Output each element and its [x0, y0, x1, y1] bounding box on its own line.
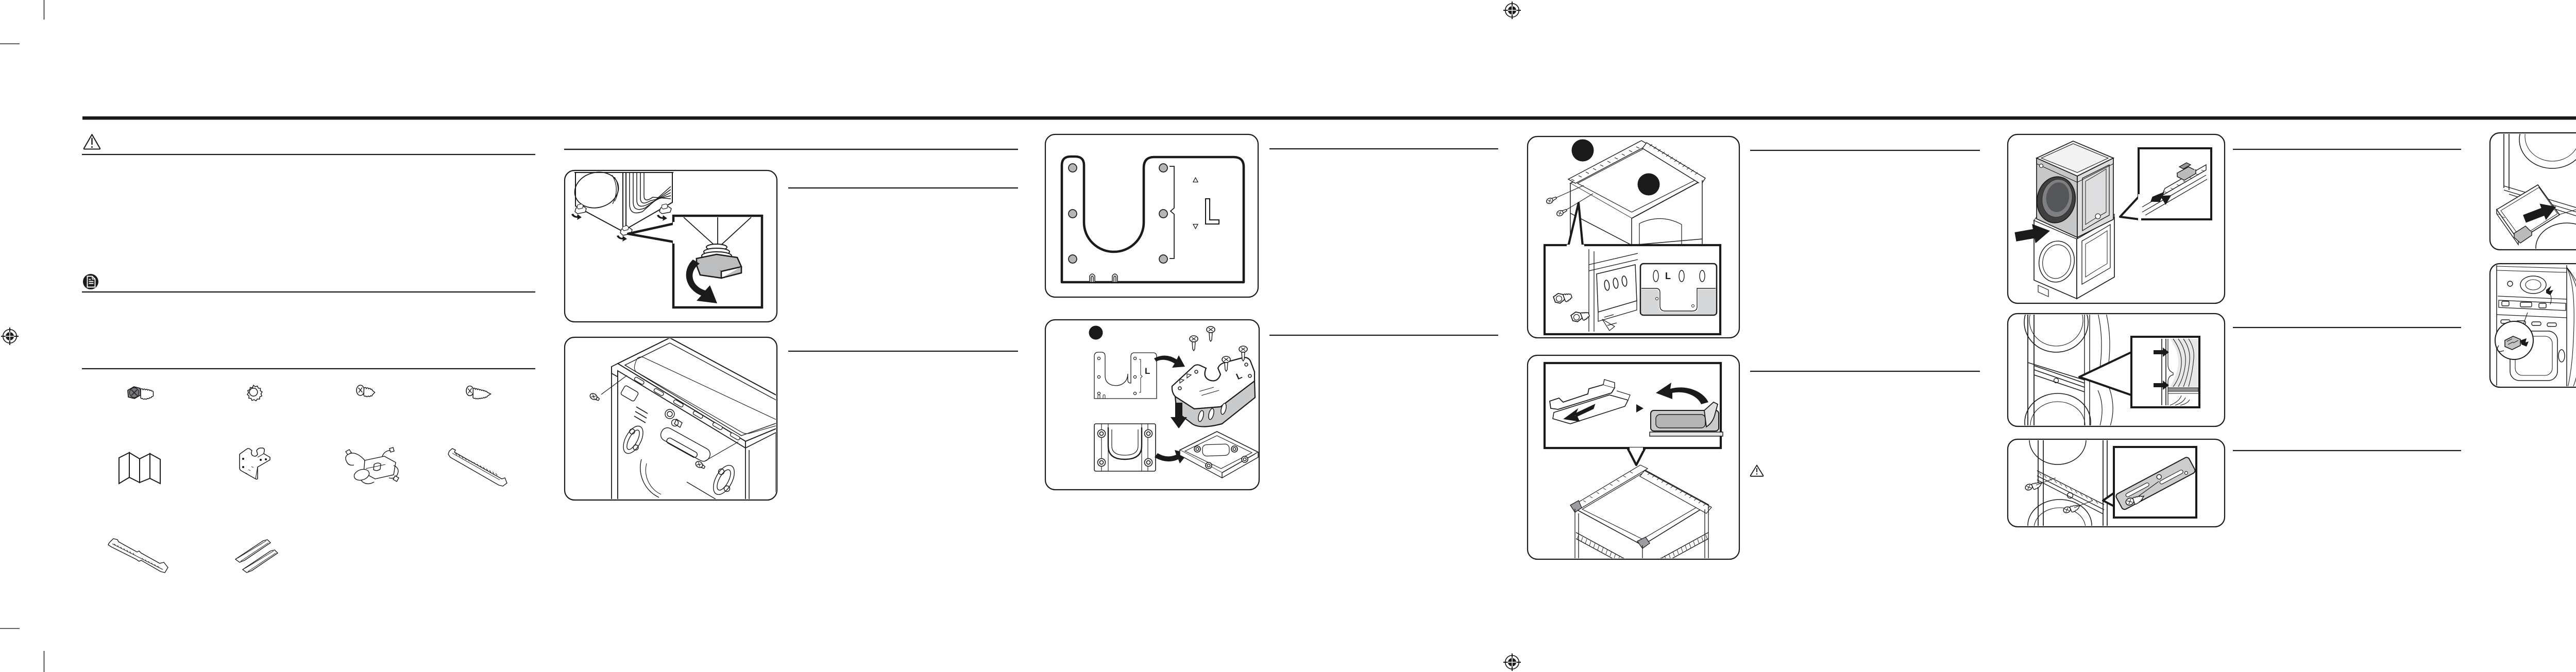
svg-text:L: L	[1145, 366, 1150, 376]
svg-text:L: L	[1665, 271, 1671, 281]
